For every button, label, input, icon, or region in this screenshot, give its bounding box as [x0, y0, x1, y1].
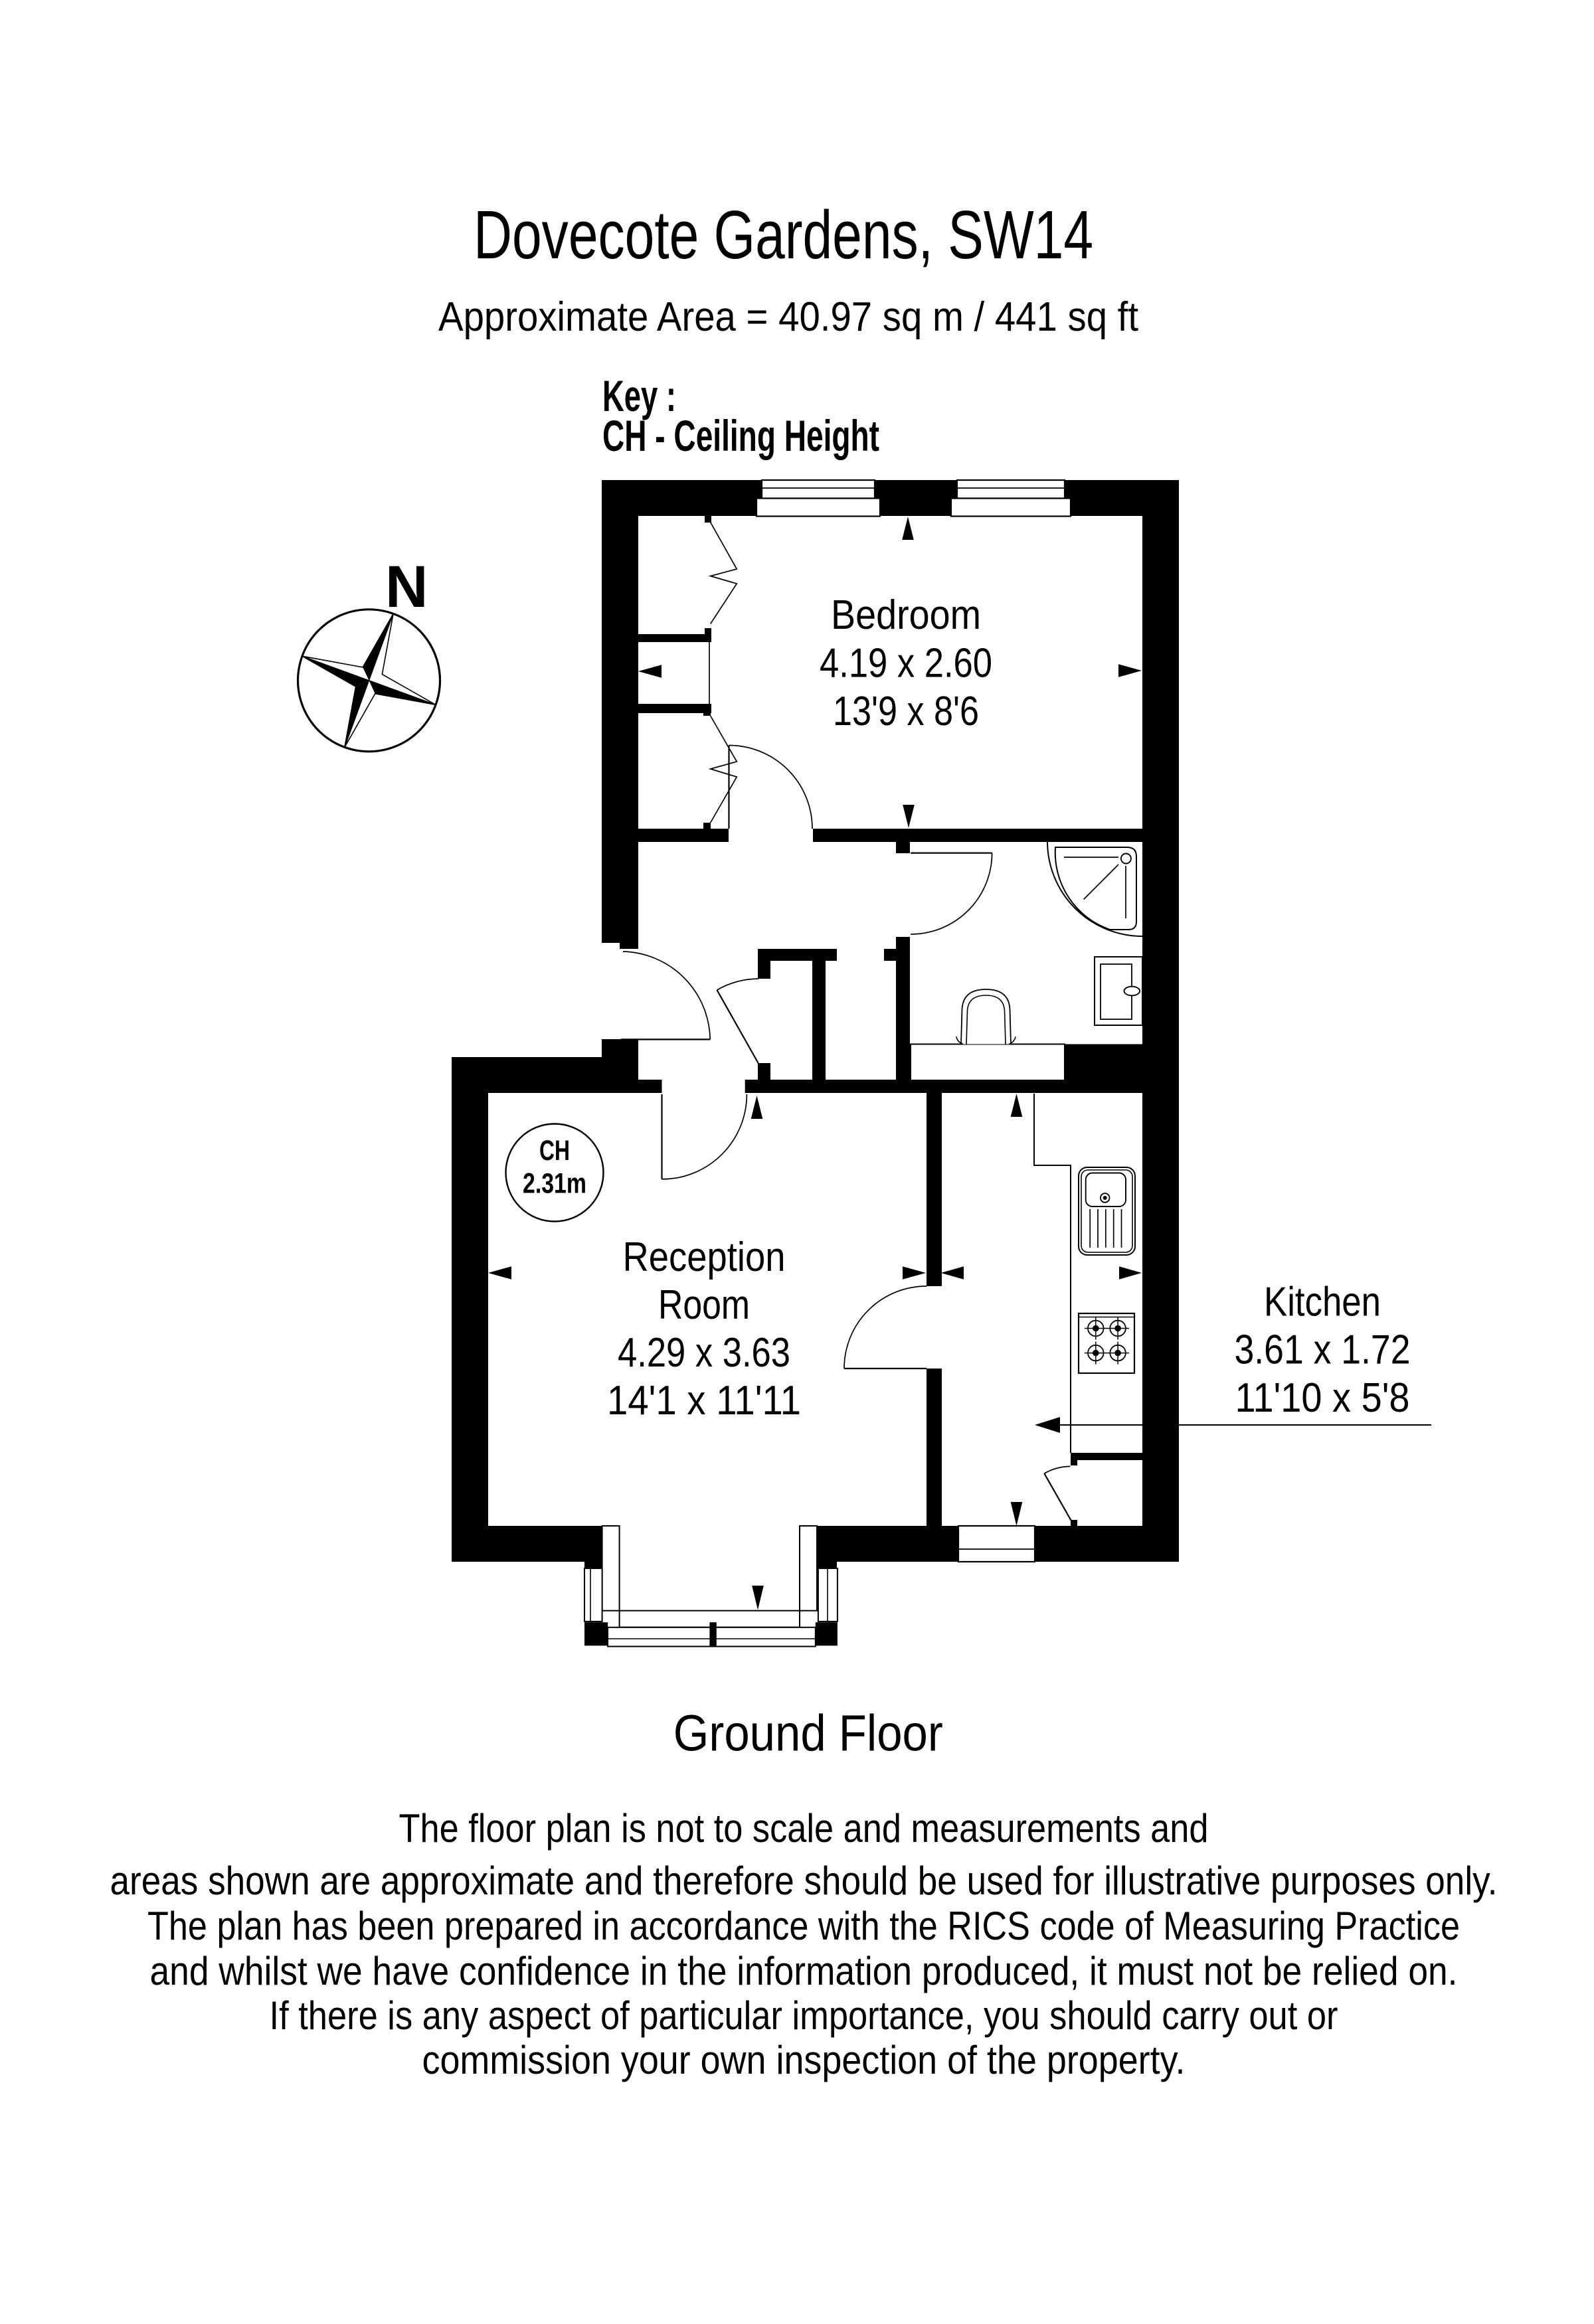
svg-text:Ground Floor: Ground Floor — [673, 1705, 943, 1762]
svg-text:14'1 x 11'11: 14'1 x 11'11 — [607, 1378, 801, 1424]
svg-text:CH - Ceiling Height: CH - Ceiling Height — [602, 411, 879, 460]
svg-text:Kitchen: Kitchen — [1264, 1280, 1381, 1325]
svg-text:areas shown are approximate an: areas shown are approximate and therefor… — [110, 1859, 1498, 1903]
svg-text:11'10 x 5'8: 11'10 x 5'8 — [1235, 1375, 1410, 1421]
svg-text:Approximate Area = 40.97 sq m: Approximate Area = 40.97 sq m / 441 sq f… — [438, 294, 1138, 340]
svg-text:The floor plan is not to scale: The floor plan is not to scale and measu… — [399, 1806, 1209, 1851]
svg-text:4.29 x 3.63: 4.29 x 3.63 — [618, 1330, 790, 1376]
svg-text:If there is any aspect of part: If there is any aspect of particular imp… — [270, 1993, 1338, 2038]
svg-text:13'9 x 8'6: 13'9 x 8'6 — [833, 689, 979, 734]
svg-text:commission your own inspection: commission your own inspection of the pr… — [422, 2038, 1186, 2082]
svg-text:Dovecote Gardens, SW14: Dovecote Gardens, SW14 — [474, 197, 1093, 273]
svg-text:N: N — [385, 553, 428, 620]
svg-text:Room: Room — [658, 1282, 750, 1328]
svg-text:2.31m: 2.31m — [523, 1168, 586, 1200]
svg-text:Reception: Reception — [623, 1234, 786, 1280]
svg-text:The plan has been prepared in: The plan has been prepared in accordance… — [147, 1904, 1460, 1948]
svg-text:CH: CH — [539, 1135, 570, 1167]
svg-text:and whilst we have confidence: and whilst we have confidence in the inf… — [150, 1949, 1458, 1993]
svg-text:Bedroom: Bedroom — [831, 592, 981, 638]
svg-text:3.61 x 1.72: 3.61 x 1.72 — [1235, 1327, 1411, 1373]
svg-text:4.19 x 2.60: 4.19 x 2.60 — [820, 641, 992, 687]
